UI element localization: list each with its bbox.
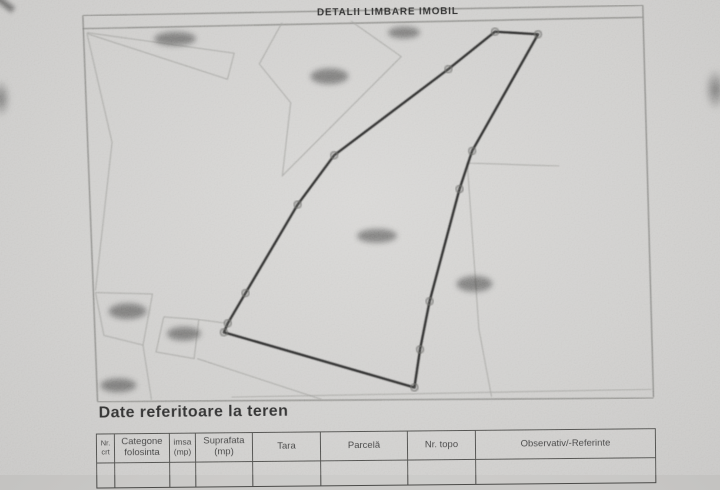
redacted-label-blob [456, 276, 492, 292]
vertex-marker-dot [459, 188, 461, 190]
column-header-line2: folosinta [124, 448, 159, 459]
empty-cell [321, 461, 408, 486]
redacted-label-blob [167, 327, 201, 341]
vertex-marker-dot [429, 300, 431, 302]
column-header-line2: (mp) [214, 447, 234, 458]
table-empty-row [97, 458, 655, 487]
scanned-cadastral-sheet: DETALII LIMBARE IMOBIL Date referitoare … [0, 0, 720, 478]
empty-cell [115, 463, 170, 488]
vertex-marker-dot [333, 154, 335, 156]
background-parcel-line [87, 33, 113, 290]
column-header: Tara [253, 432, 321, 461]
section-heading: Date referitoare la teren [99, 403, 289, 423]
background-parcel-line [467, 162, 559, 167]
background-parcel-line [259, 21, 402, 176]
column-header: imsa(mp) [170, 434, 196, 462]
background-parcels [87, 18, 652, 401]
column-header: Parcelă [321, 432, 408, 461]
empty-cell [253, 461, 321, 486]
column-header-line1: Observativ/-Referinte [521, 438, 611, 450]
map-frame-line [83, 17, 643, 28]
redacted-label-blob [100, 378, 136, 392]
boundary-vertex-markers [218, 28, 545, 393]
vertex-marker-dot [537, 33, 539, 35]
column-header-line2: crt [101, 448, 109, 457]
land-data-table: Nr.crtCategonefolosintaimsa(mp)Suprafata… [96, 428, 657, 488]
vertex-marker-dot [227, 322, 229, 324]
background-parcel-line [197, 357, 321, 400]
column-header: Nr. topo [408, 431, 476, 460]
parcel-boundary-outline [221, 31, 541, 389]
redacted-label-blob [388, 26, 420, 38]
redacted-label-blob [357, 229, 397, 243]
map-frame-line [83, 16, 98, 402]
vertex-marker-dot [494, 31, 496, 33]
empty-cell [196, 462, 253, 487]
vertex-marker-dot [419, 348, 421, 350]
column-header-line1: Tara [277, 441, 296, 452]
column-header-line2: (mp) [174, 448, 192, 458]
redacted-label-blob [154, 32, 196, 46]
column-header-line1: Nr. topo [425, 440, 458, 451]
empty-cell [408, 460, 476, 485]
background-parcel-line [199, 319, 227, 323]
vertex-marker-dot [223, 331, 225, 333]
empty-cell [97, 463, 115, 487]
column-header: Categonefolosinta [115, 434, 170, 463]
vertex-marker-dot [447, 68, 449, 70]
vertex-marker-dot [244, 292, 246, 294]
redacted-label-blob [310, 68, 348, 84]
column-header: Suprafata(mp) [196, 433, 253, 462]
vertex-marker-dot [297, 204, 299, 206]
column-header-line1: Parcelă [348, 440, 380, 451]
map-title: DETALII LIMBARE IMOBIL [268, 6, 508, 19]
property-boundary [221, 31, 541, 389]
map-frame [83, 5, 654, 403]
column-header: Nr.crt [97, 434, 115, 462]
vertex-marker-dot [413, 386, 415, 388]
empty-cell [476, 458, 655, 484]
map-frame-line [643, 5, 654, 397]
map-frame-line [98, 396, 654, 403]
background-parcel-line [143, 345, 152, 400]
redacted-label-blob [109, 303, 147, 319]
vertex-marker-dot [471, 150, 473, 152]
column-header: Observativ/-Referinte [476, 429, 655, 459]
